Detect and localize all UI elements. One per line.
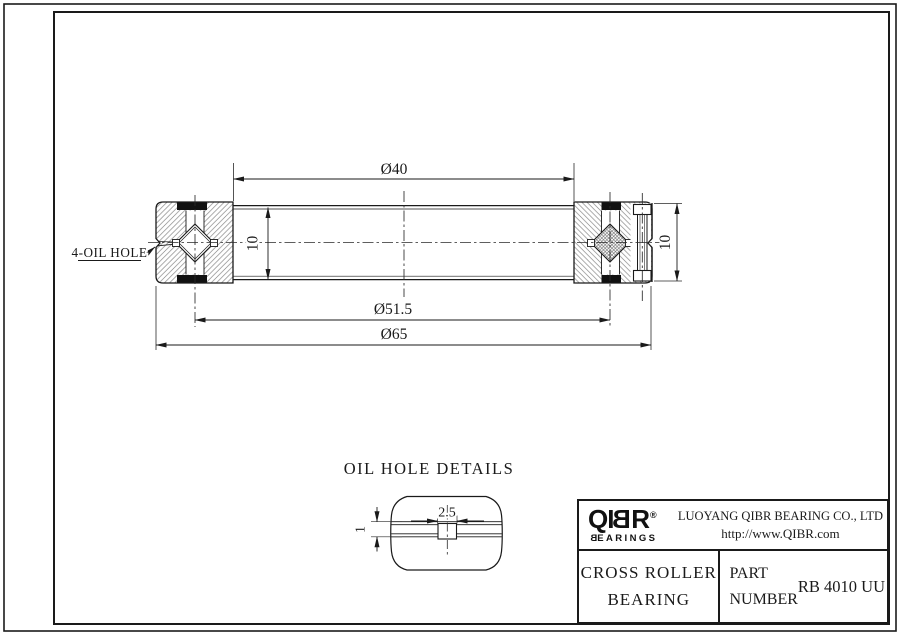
dim-text-width-right: 10 (657, 235, 674, 251)
registered-trademark-icon: ® (650, 510, 657, 520)
title-block: QIBR® BEARINGS LUOYANG QIBR BEARING CO.,… (577, 499, 889, 624)
dim-text-raceway: Ø51.5 (374, 301, 413, 318)
left-spacer-left (173, 240, 180, 247)
cad-sheet: Ø40 Ø51.5 Ø65 10 10 4-OIL HOLE OIL HOLE … (0, 0, 900, 636)
brand-name-suffix: R (631, 504, 649, 534)
right-seal-top (602, 203, 622, 211)
part-number-value: RB 4010 UU (798, 577, 887, 597)
product-name-line2: BEARING (607, 587, 690, 613)
left-seal-bottom (177, 275, 207, 283)
dim-text-outer: Ø65 (381, 326, 408, 343)
company-info: LUOYANG QIBR BEARING CO., LTD http://www… (678, 508, 887, 542)
part-label-line1: PART (729, 561, 797, 587)
oil-hole-label: 4-OIL HOLE (72, 245, 148, 260)
left-seal-top (177, 203, 207, 211)
dim-text-width-left: 10 (245, 236, 262, 252)
brand-mirrored-b: B (613, 506, 631, 532)
main-section-view: Ø40 Ø51.5 Ø65 10 10 4-OIL HOLE (72, 161, 682, 350)
right-seal-bottom (602, 275, 622, 283)
tagline-rest: EARINGS (597, 533, 657, 544)
product-name-line1: CROSS ROLLER (581, 560, 717, 586)
product-name-cell: CROSS ROLLER BEARING (579, 551, 720, 622)
part-label-line2: NUMBER (729, 587, 797, 613)
brand-name-prefix: QI (588, 504, 613, 534)
tagline-mirrored-b: B (588, 533, 597, 544)
dim-text-groove-depth: 1 (354, 526, 369, 533)
brand-logo: QIBR® BEARINGS (579, 506, 678, 544)
title-block-header-row: QIBR® BEARINGS LUOYANG QIBR BEARING CO.,… (579, 501, 887, 551)
part-number-label: PART NUMBER (729, 561, 797, 612)
right-spacer-left (588, 240, 595, 247)
dim-text-hole-width: 2.5 (438, 506, 456, 521)
detail-title: OIL HOLE DETAILS (344, 459, 515, 478)
brand-wordmark: QIBR® (588, 506, 678, 532)
left-spacer-right (211, 240, 218, 247)
part-number-cell: PART NUMBER RB 4010 UU (720, 551, 887, 622)
brand-tagline: BEARINGS (588, 533, 678, 544)
title-block-detail-row: CROSS ROLLER BEARING PART NUMBER RB 4010… (579, 551, 887, 622)
oil-hole-detail-view: OIL HOLE DETAILS 2.5 1 (344, 459, 515, 570)
dim-text-bore: Ø40 (381, 161, 408, 178)
company-name: LUOYANG QIBR BEARING CO., LTD (678, 508, 883, 525)
company-website: http://www.QIBR.com (678, 525, 883, 543)
